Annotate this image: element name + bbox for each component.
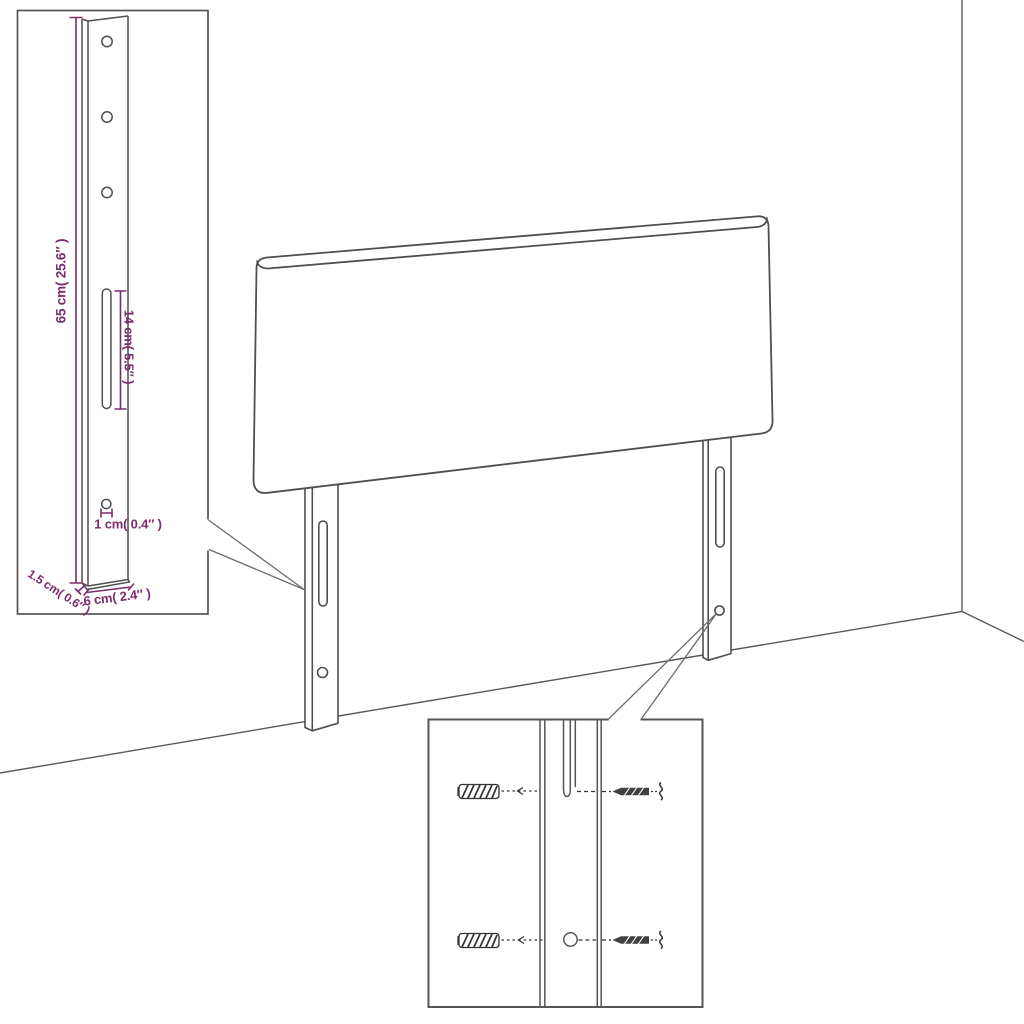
- left-leg-hole: [318, 668, 328, 678]
- hole-diameter-label: 1 cm( 0.4″ ): [94, 517, 161, 532]
- right-leg-slot: [716, 467, 724, 547]
- inset-2-leader-lines: [608, 614, 717, 720]
- bracket-hole-2: [102, 112, 112, 122]
- headboard-right-leg: [703, 421, 731, 660]
- slot-length-label: 14 cm( 5.5″ ): [122, 310, 137, 384]
- fixings-detail-inset: [429, 720, 703, 1008]
- inset-2-box: [429, 720, 703, 1008]
- floor-line-right: [732, 612, 1024, 651]
- bracket-hole-3: [102, 187, 112, 197]
- leader-line: [608, 614, 717, 720]
- bracket-height-label: 65 cm( 25.6″ ): [54, 239, 69, 324]
- bracket-slot: [102, 289, 111, 409]
- headboard-left-leg: [305, 466, 338, 731]
- floor-line-left: [0, 722, 305, 773]
- line-art-canvas: [0, 0, 1024, 1024]
- inset-1-leader-lines: [209, 520, 305, 590]
- headboard-front-face: [254, 216, 773, 493]
- bracket-hole-1: [102, 36, 112, 46]
- floor-line-mid: [339, 655, 704, 716]
- bracket-small-hole: [102, 499, 111, 508]
- headboard-dimension-diagram: 65 cm( 25.6″ ) 14 cm( 5.5″ ) 1 cm( 0.4″ …: [0, 0, 1024, 1024]
- leader-line: [641, 614, 717, 720]
- left-leg-slot: [319, 521, 327, 606]
- headboard-panel: [254, 216, 773, 493]
- strip-round-hole: [564, 933, 577, 946]
